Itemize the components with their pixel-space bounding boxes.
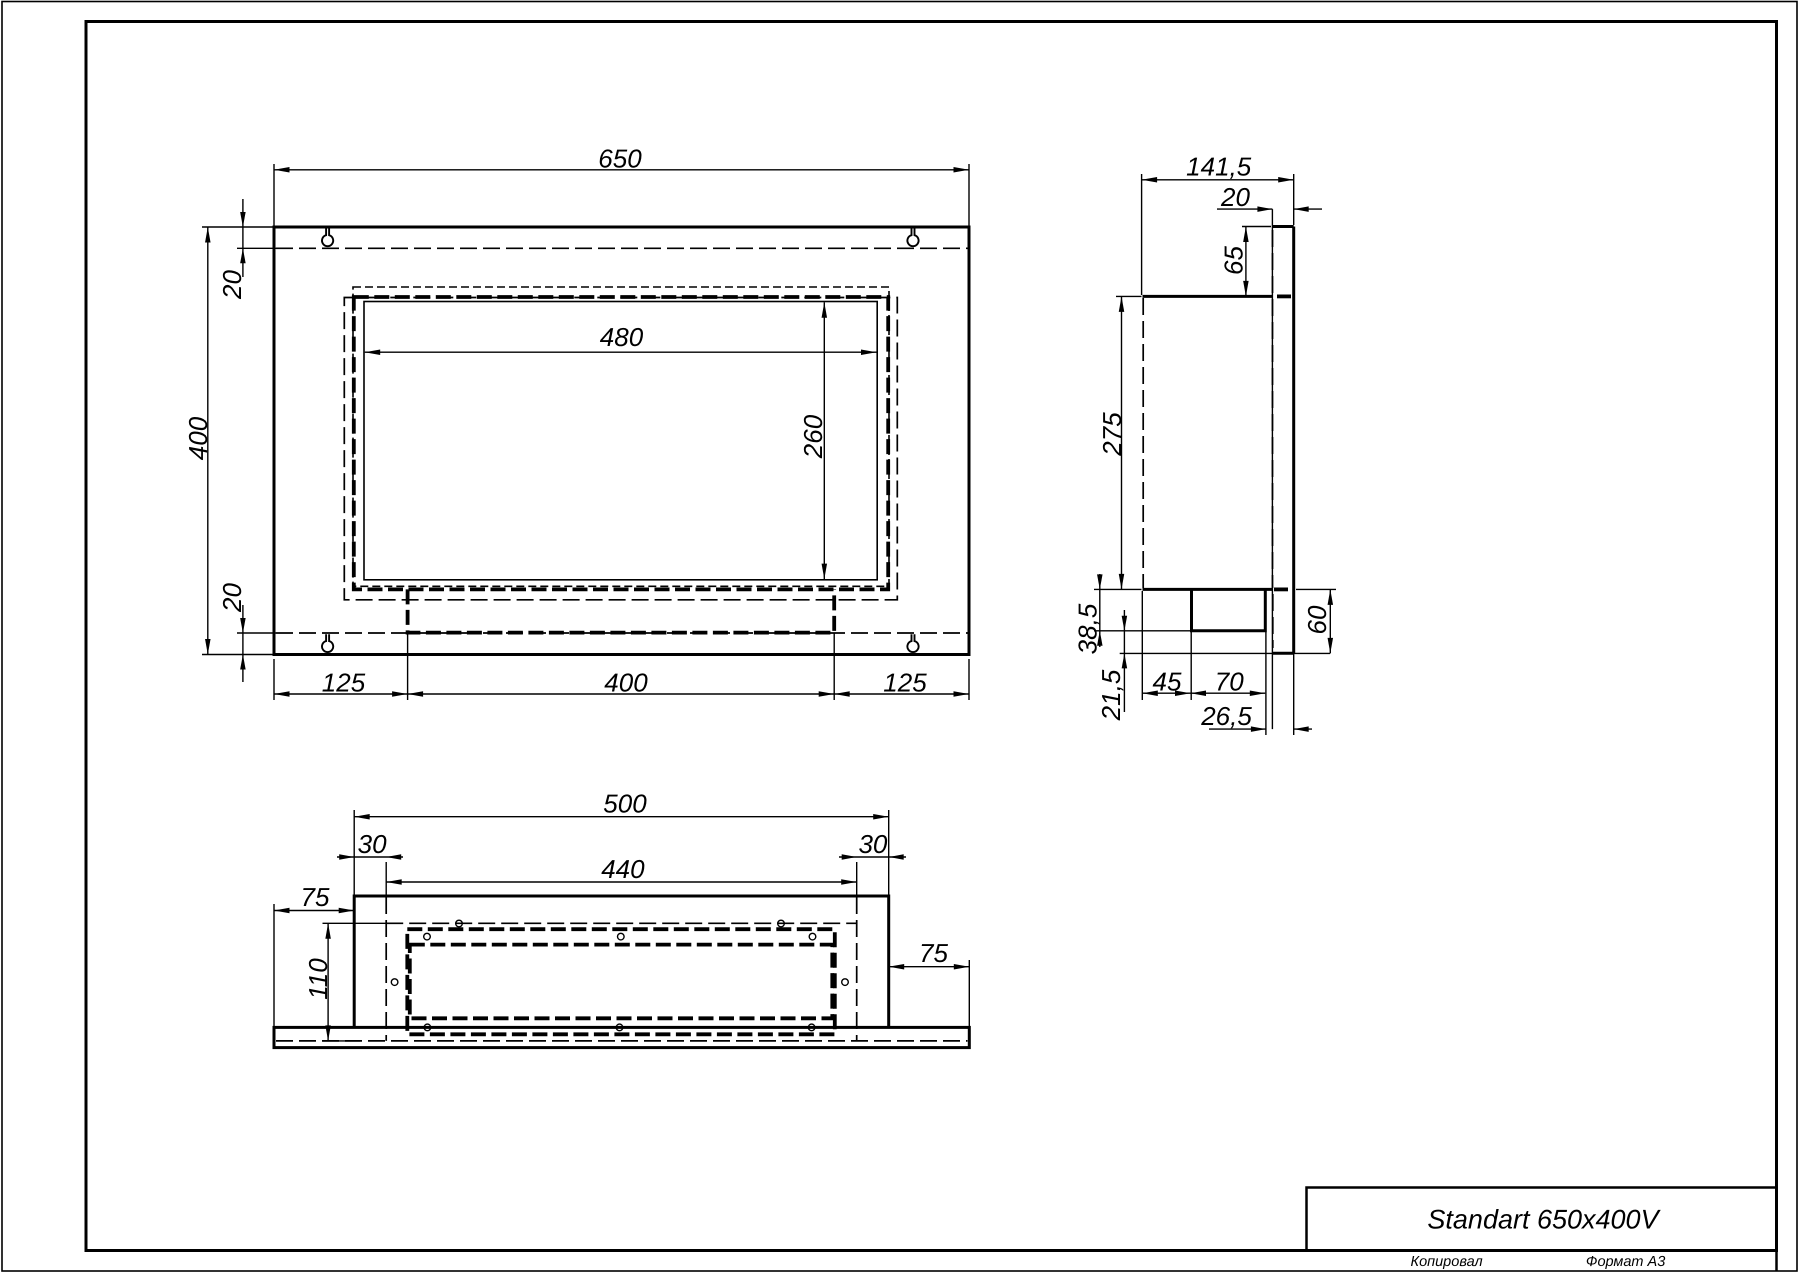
svg-text:400: 400 — [604, 667, 648, 697]
svg-text:440: 440 — [601, 854, 645, 884]
svg-text:141,5: 141,5 — [1186, 151, 1252, 181]
svg-text:21,5: 21,5 — [1096, 669, 1126, 721]
svg-text:260: 260 — [798, 414, 828, 459]
svg-text:20: 20 — [217, 583, 247, 613]
svg-text:75: 75 — [301, 882, 330, 912]
svg-text:45: 45 — [1153, 666, 1182, 696]
svg-text:400: 400 — [183, 416, 213, 460]
svg-text:125: 125 — [883, 667, 927, 697]
svg-text:Копировал: Копировал — [1411, 1254, 1483, 1270]
svg-text:38,5: 38,5 — [1072, 603, 1102, 654]
svg-text:125: 125 — [322, 667, 366, 697]
svg-text:Формат А3: Формат А3 — [1586, 1254, 1665, 1270]
svg-text:480: 480 — [600, 322, 644, 352]
svg-text:110: 110 — [303, 958, 333, 1000]
svg-text:70: 70 — [1215, 666, 1244, 696]
svg-text:30: 30 — [858, 829, 887, 859]
svg-text:20: 20 — [1220, 182, 1250, 212]
svg-text:650: 650 — [598, 143, 642, 173]
svg-text:60: 60 — [1302, 605, 1332, 634]
svg-text:75: 75 — [919, 938, 948, 968]
svg-text:500: 500 — [603, 788, 647, 818]
svg-text:Standart 650x400V: Standart 650x400V — [1427, 1205, 1661, 1235]
svg-text:20: 20 — [217, 270, 247, 300]
svg-text:65: 65 — [1218, 246, 1248, 275]
svg-text:26,5: 26,5 — [1200, 701, 1252, 731]
svg-text:275: 275 — [1097, 412, 1127, 457]
svg-text:30: 30 — [358, 829, 387, 859]
